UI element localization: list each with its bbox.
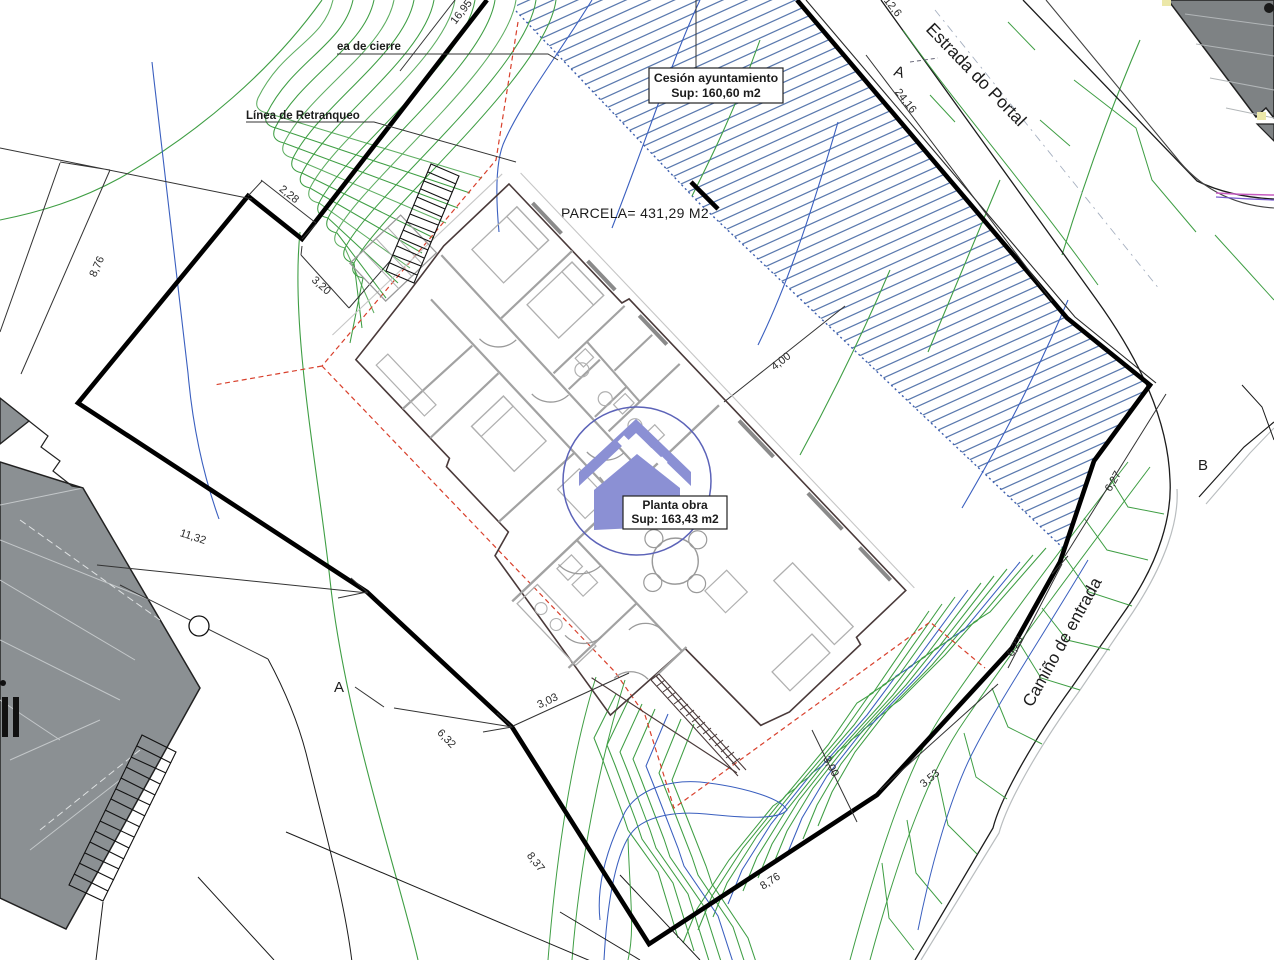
- svg-text:A: A: [334, 679, 344, 696]
- svg-text:Sup: 163,43 m2: Sup: 163,43 m2: [631, 512, 719, 526]
- svg-text:B: B: [1198, 457, 1208, 474]
- svg-text:Línea de Retranqueo: Línea de Retranqueo: [246, 110, 360, 122]
- svg-text:Planta obra: Planta obra: [642, 498, 708, 512]
- svg-text:PARCELA= 431,29 M2: PARCELA= 431,29 M2: [561, 205, 709, 221]
- svg-text:Cesión ayuntamiento: Cesión ayuntamiento: [654, 71, 779, 85]
- svg-text:ea de cierre: ea de cierre: [337, 41, 401, 53]
- svg-text:Sup: 160,60 m2: Sup: 160,60 m2: [671, 86, 761, 100]
